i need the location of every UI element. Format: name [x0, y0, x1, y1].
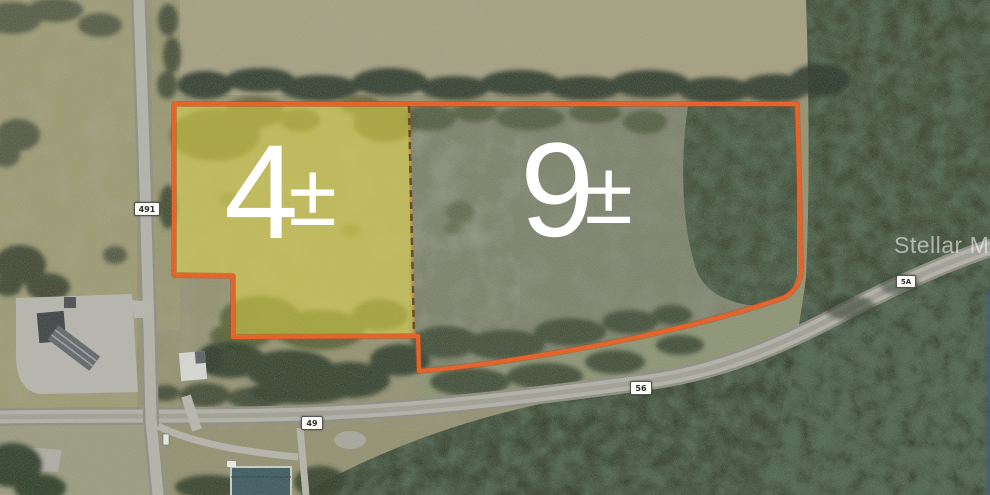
image-edge-seam [986, 290, 990, 495]
aerial-map: 4 ± 9 ± 491 49 56 5A Stellar MLS [0, 0, 990, 495]
road-shield-49: 49 [301, 416, 323, 430]
parcel-4-acreage-label: 4 ± [224, 126, 337, 260]
road-shield-56: 56 [630, 381, 652, 395]
parcel-9-acreage-value: 9 [520, 124, 595, 258]
road-shield-491: 491 [134, 202, 160, 216]
mls-watermark: Stellar MLS [894, 232, 990, 259]
parcel-4-acreage-value: 4 [224, 126, 299, 260]
satellite-imagery [0, 0, 990, 495]
parcel-9-acreage-label: 9 ± [520, 124, 633, 258]
photo-grain [0, 0, 990, 495]
road-shield-5a: 5A [896, 275, 916, 288]
parcel-4-plus-minus: ± [289, 151, 337, 239]
parcel-9-plus-minus: ± [585, 149, 633, 237]
